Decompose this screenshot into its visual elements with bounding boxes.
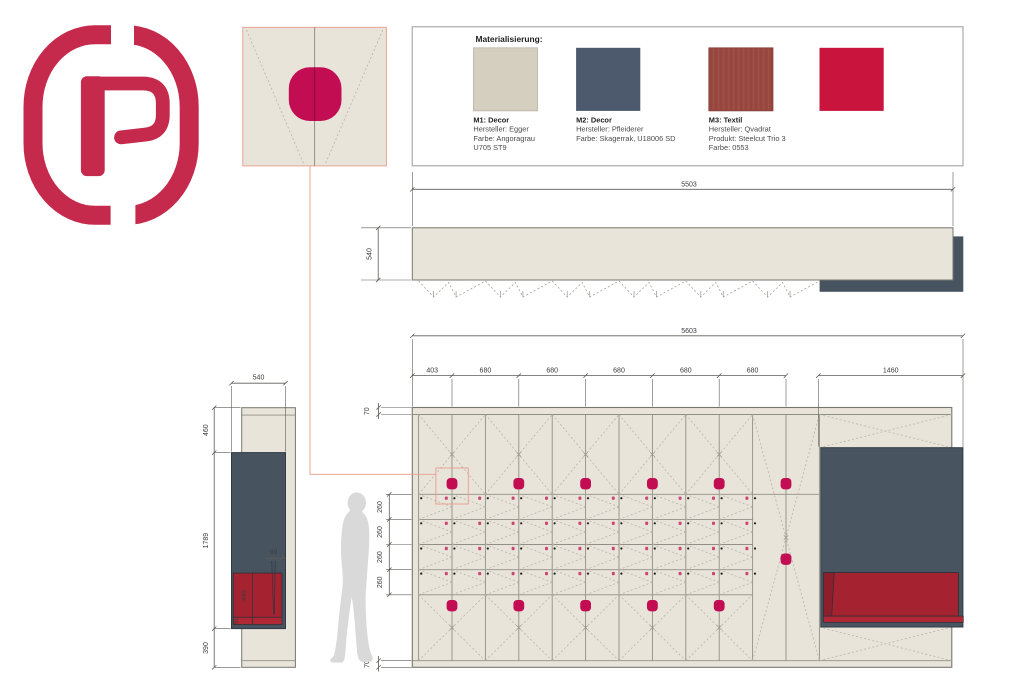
svg-text:U705 ST9: U705 ST9 [473,143,506,152]
svg-text:680: 680 [613,368,625,375]
svg-text:99: 99 [270,549,278,556]
svg-text:70: 70 [364,407,371,415]
svg-text:Hersteller: Qvadrat: Hersteller: Qvadrat [709,125,771,134]
svg-text:Materialisierung:: Materialisierung: [476,34,543,44]
svg-text:Farbe: 0553: Farbe: 0553 [709,143,749,152]
svg-text:403: 403 [426,368,438,375]
svg-text:680: 680 [546,368,558,375]
svg-text:5603: 5603 [681,328,697,335]
svg-text:M2: Decor: M2: Decor [576,115,612,124]
svg-text:260: 260 [377,501,384,513]
svg-text:1460: 1460 [883,368,899,375]
svg-text:260: 260 [377,551,384,563]
svg-text:260: 260 [377,576,384,588]
svg-text:M3: Textil: M3: Textil [709,115,743,124]
svg-text:Hersteller: Pfleiderer: Hersteller: Pfleiderer [576,125,644,134]
svg-text:460: 460 [203,424,210,436]
svg-text:390: 390 [203,642,210,654]
svg-text:M1: Decor: M1: Decor [473,115,509,124]
svg-text:260: 260 [377,526,384,538]
svg-text:540: 540 [367,248,374,260]
svg-text:Farbe: Angoragrau: Farbe: Angoragrau [473,134,535,143]
svg-text:90: 90 [233,616,240,624]
svg-text:460: 460 [241,590,248,601]
svg-text:1789: 1789 [203,533,210,549]
svg-text:680: 680 [747,368,759,375]
svg-text:680: 680 [680,368,692,375]
svg-text:680: 680 [480,368,492,375]
svg-text:Hersteller: Egger: Hersteller: Egger [473,125,529,134]
svg-text:5503: 5503 [681,181,697,188]
svg-text:540: 540 [253,375,265,382]
svg-text:Produkt: Steelcut Trio 3: Produkt: Steelcut Trio 3 [709,134,786,143]
svg-text:Farbe: Skagerrak, U18006 SD: Farbe: Skagerrak, U18006 SD [576,134,675,143]
